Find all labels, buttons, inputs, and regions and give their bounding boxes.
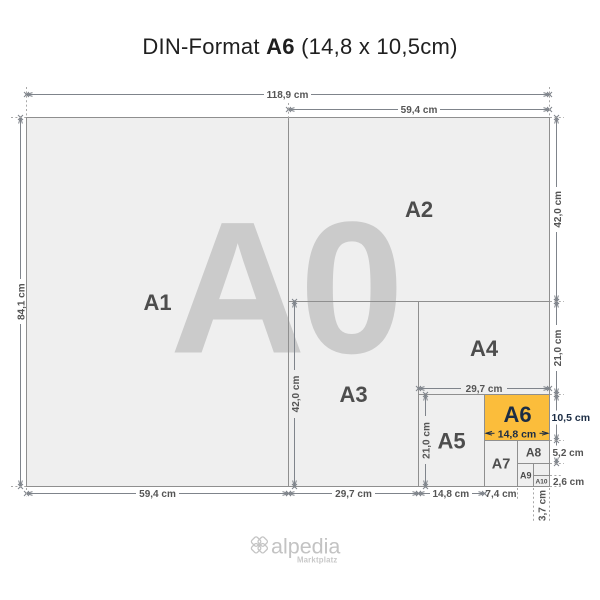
svg-text:29,7 cm: 29,7 cm (335, 489, 372, 500)
svg-text:42,0 cm: 42,0 cm (553, 191, 564, 228)
svg-text:A2: A2 (405, 197, 433, 222)
svg-text:A8: A8 (526, 446, 542, 460)
svg-text:21,0 cm: 21,0 cm (422, 422, 433, 459)
svg-text:59,4 cm: 59,4 cm (401, 105, 438, 116)
svg-text:A1: A1 (143, 290, 171, 315)
svg-text:A9: A9 (520, 471, 532, 481)
svg-text:7,4 cm: 7,4 cm (485, 489, 516, 500)
svg-text:Marktplatz: Marktplatz (297, 555, 338, 564)
svg-text:14,8 cm: 14,8 cm (498, 428, 537, 440)
svg-text:A3: A3 (339, 382, 367, 407)
svg-text:59,4 cm: 59,4 cm (139, 489, 176, 500)
svg-text:A0: A0 (170, 183, 398, 393)
svg-text:84,1 cm: 84,1 cm (17, 283, 28, 320)
svg-text:DIN-Format A6 (14,8 x 10,5cm): DIN-Format A6 (14,8 x 10,5cm) (142, 34, 457, 59)
svg-text:3,7 cm: 3,7 cm (538, 490, 549, 521)
svg-text:118,9 cm: 118,9 cm (267, 90, 309, 101)
svg-text:A4: A4 (470, 336, 499, 361)
svg-text:A6: A6 (503, 402, 531, 427)
svg-text:42,0 cm: 42,0 cm (291, 376, 302, 413)
svg-text:A7: A7 (492, 457, 511, 473)
svg-text:5,2 cm: 5,2 cm (553, 448, 584, 459)
svg-text:A10: A10 (536, 478, 548, 485)
svg-text:10,5 cm: 10,5 cm (552, 412, 591, 424)
svg-text:14,8 cm: 14,8 cm (432, 489, 469, 500)
svg-text:21,0 cm: 21,0 cm (553, 330, 564, 367)
svg-text:29,7 cm: 29,7 cm (466, 384, 503, 395)
svg-text:A5: A5 (437, 428, 465, 453)
svg-text:2,6 cm: 2,6 cm (553, 477, 584, 488)
